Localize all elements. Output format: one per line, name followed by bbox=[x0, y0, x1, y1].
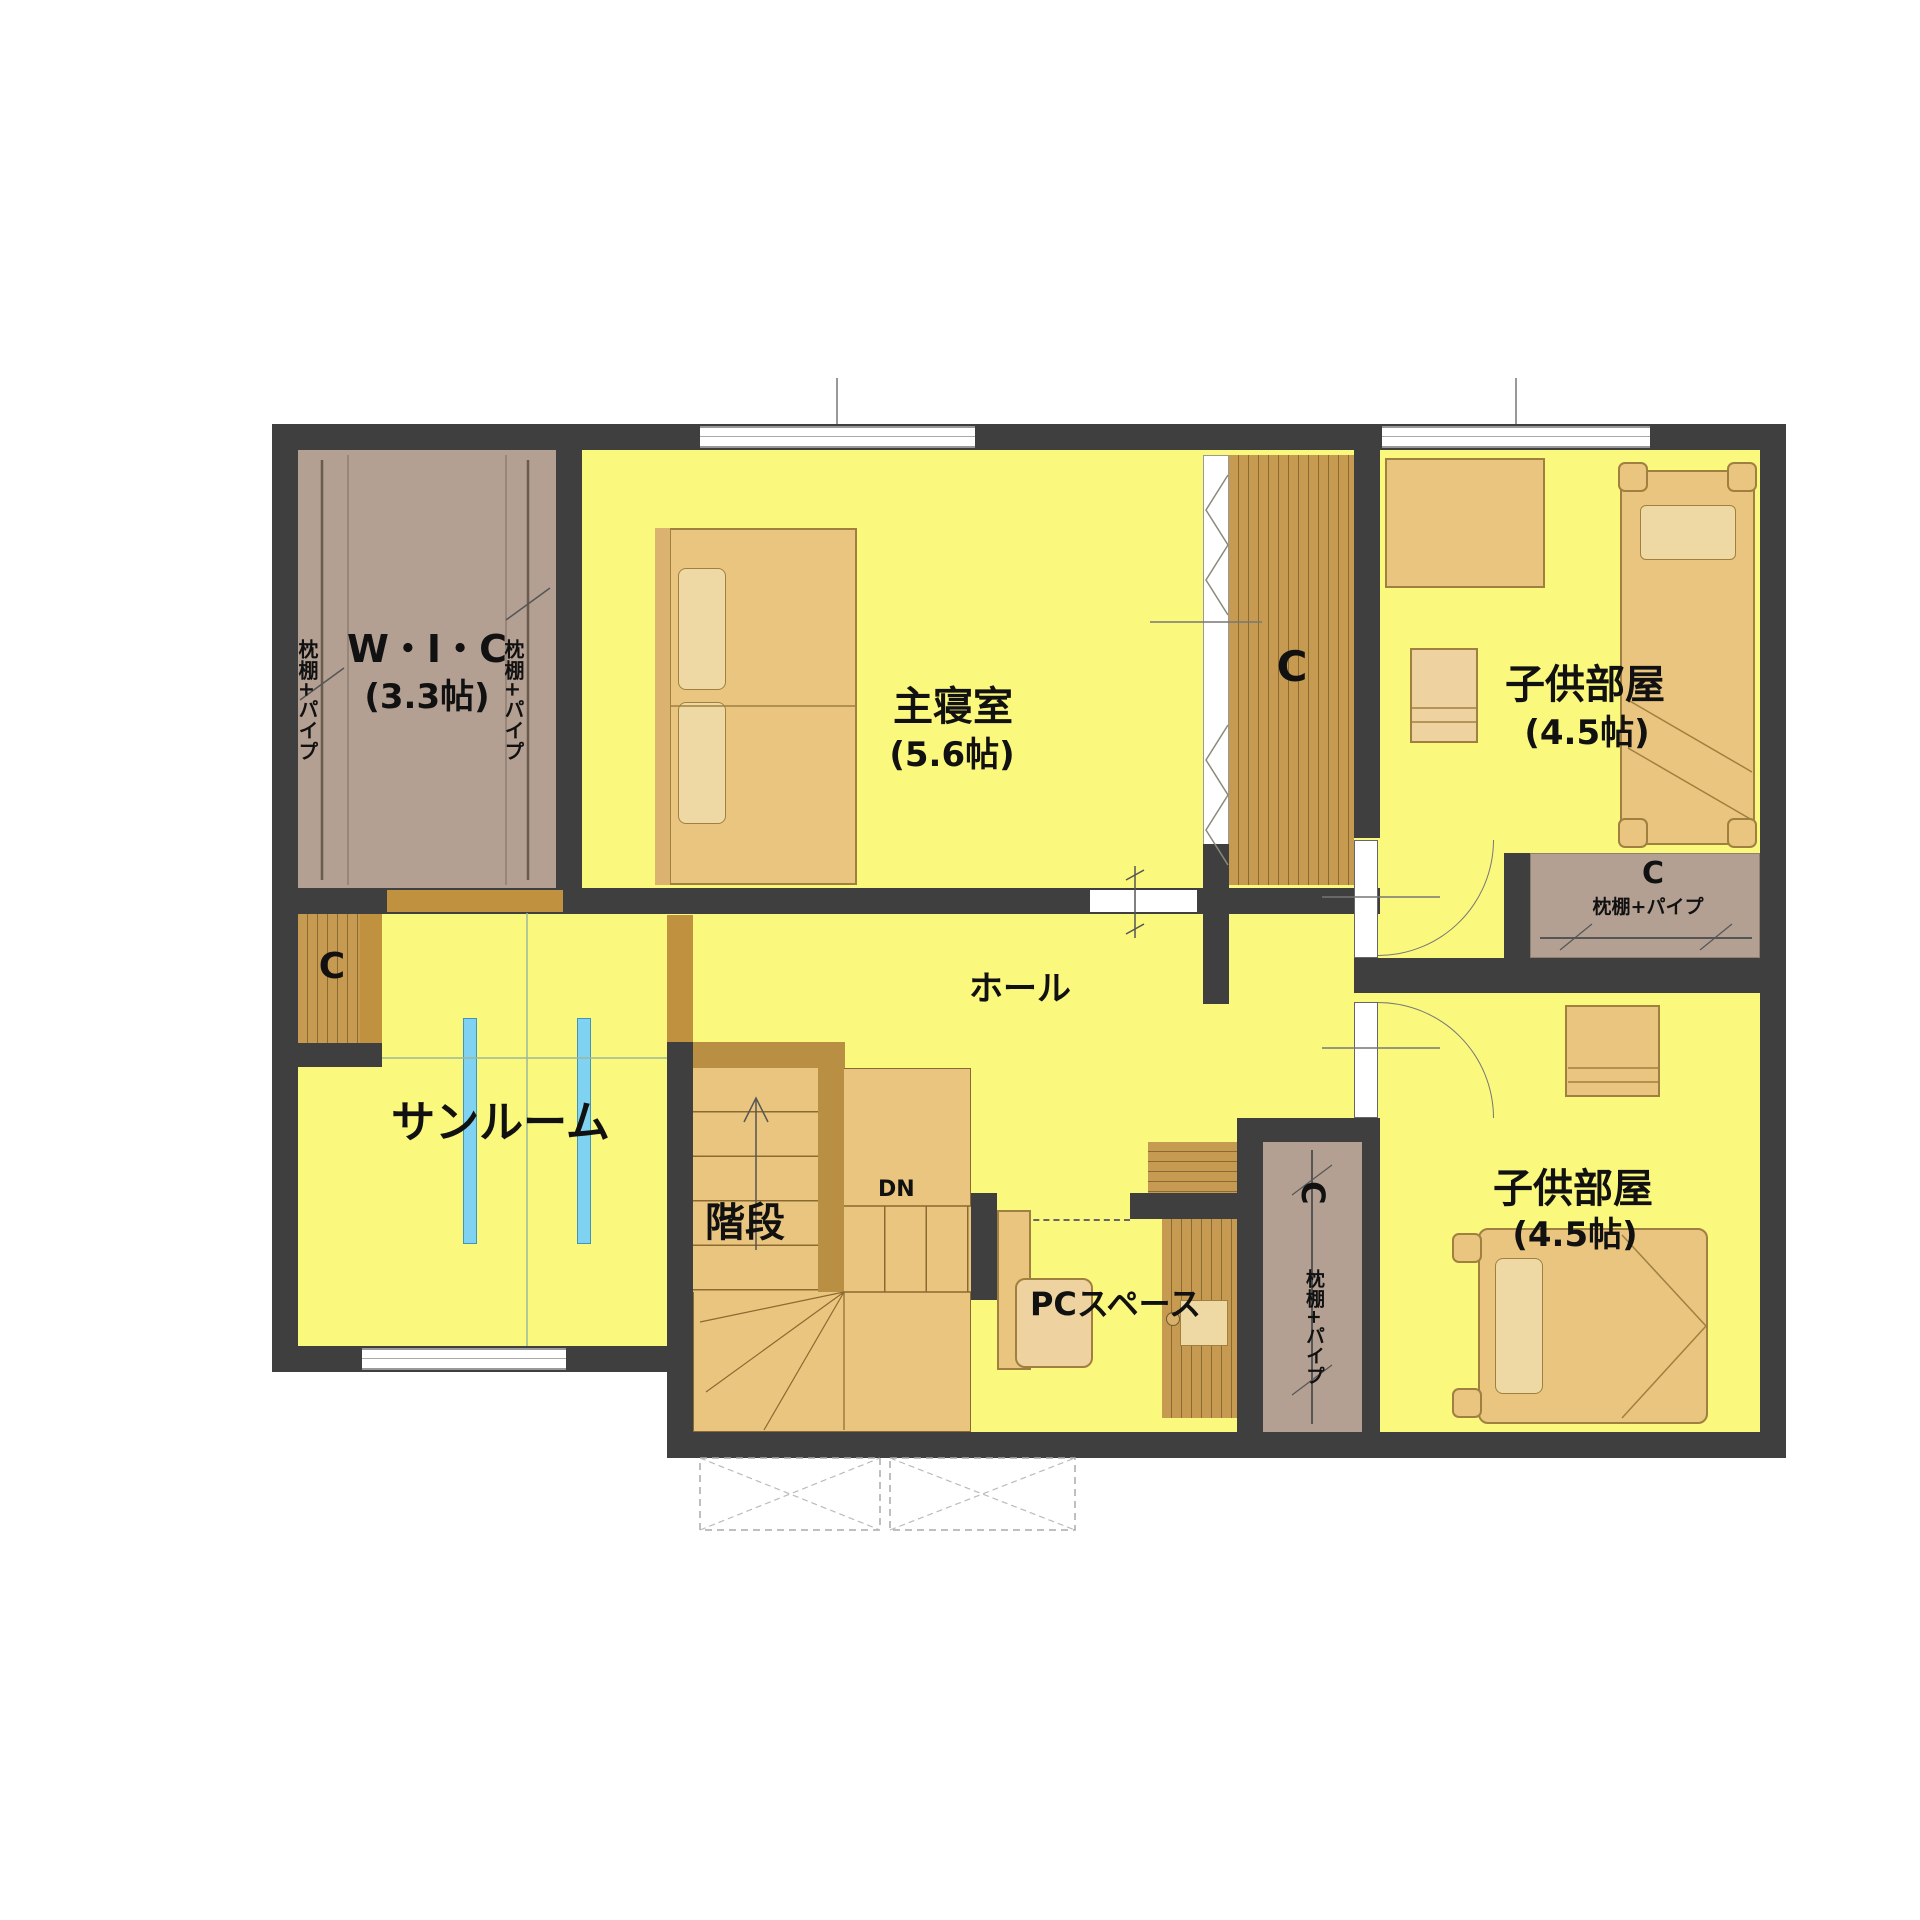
label-stairs: 階段 bbox=[690, 1202, 800, 1244]
window-kids-north bbox=[1382, 426, 1650, 448]
wall-lcloset-south bbox=[298, 1043, 382, 1067]
label-stairs-dn: DN bbox=[878, 1178, 938, 1201]
wall-scloset-east bbox=[1362, 1142, 1380, 1432]
folding-door bbox=[1203, 455, 1229, 885]
kids-north-bed-post-se bbox=[1727, 818, 1757, 848]
wall-between-kids-rooms bbox=[1354, 958, 1760, 993]
master-pillow-1 bbox=[678, 568, 726, 690]
lower-opening-1-x2 bbox=[700, 1458, 880, 1530]
label-closet-se-pipe: 枕棚+パイプ bbox=[1568, 898, 1728, 918]
label-closet-sunroom: C bbox=[310, 948, 354, 986]
wall-stair-east bbox=[971, 1193, 997, 1300]
wall-wic-east bbox=[556, 424, 582, 914]
lower-opening-2-x2 bbox=[890, 1458, 1075, 1530]
label-pc-space: PCスペース bbox=[1028, 1288, 1203, 1322]
label-closet-south-code: C bbox=[1295, 1169, 1329, 1217]
kids-south-bed-post-sw bbox=[1452, 1388, 1482, 1418]
lower-opening-2 bbox=[890, 1458, 1075, 1530]
sunroom-hall-door bbox=[667, 915, 693, 1042]
stair-top-rail bbox=[693, 1042, 845, 1068]
stair-upper-flight bbox=[693, 1068, 818, 1292]
window-tick-1 bbox=[836, 378, 838, 424]
label-closet-master: C bbox=[1262, 645, 1322, 689]
kids-south-bed-post-nw bbox=[1452, 1233, 1482, 1263]
window-master bbox=[700, 426, 975, 448]
window-tick-2 bbox=[1515, 378, 1517, 424]
master-bed-headboard bbox=[655, 528, 671, 885]
wall-secloset-west bbox=[1504, 853, 1530, 958]
label-master-name: 主寝室 bbox=[858, 686, 1048, 728]
door-kids-north bbox=[1354, 840, 1378, 958]
closet-sunroom-door bbox=[360, 913, 382, 1043]
label-master-area: (5.6帖) bbox=[852, 738, 1052, 774]
label-wic-pipe-right: 枕棚+パイプ bbox=[498, 560, 528, 840]
label-closet-south-pipe: 枕棚+パイプ bbox=[1298, 1232, 1328, 1422]
lower-opening-1-x1 bbox=[700, 1458, 880, 1530]
lower-opening-2-x1 bbox=[890, 1458, 1075, 1530]
wic-entry-opening bbox=[387, 890, 563, 912]
stair-lower-flight bbox=[844, 1206, 971, 1292]
label-wic-pipe-left: 枕棚+パイプ bbox=[292, 560, 322, 840]
kids-north-bed-post-ne bbox=[1727, 462, 1757, 492]
label-kids-south-name: 子供部屋 bbox=[1468, 1168, 1678, 1210]
kids-north-shelf bbox=[1410, 648, 1478, 743]
label-kids-north-area: (4.5帖) bbox=[1492, 716, 1682, 752]
label-kids-south-area: (4.5帖) bbox=[1480, 1218, 1670, 1254]
label-hall: ホール bbox=[955, 972, 1085, 1008]
kids-north-bed-post-nw bbox=[1618, 462, 1648, 492]
wall-outer-right bbox=[1760, 424, 1786, 1458]
lower-opening-1 bbox=[700, 1458, 880, 1530]
kids-north-bed-post-sw bbox=[1618, 818, 1648, 848]
kids-south-desk bbox=[1565, 1005, 1660, 1097]
wall-outer-bottom bbox=[667, 1432, 1786, 1458]
wall-closet-east bbox=[1354, 424, 1380, 838]
kids-south-pillow bbox=[1495, 1258, 1543, 1394]
master-pillow-2 bbox=[678, 702, 726, 824]
window-sunroom bbox=[362, 1348, 566, 1370]
label-closet-se-code: C bbox=[1630, 858, 1676, 890]
wall-hall-stub bbox=[1203, 844, 1229, 1004]
closet-shelf-block bbox=[1148, 1142, 1243, 1193]
stair-center-rail bbox=[818, 1068, 844, 1292]
kids-north-desk bbox=[1385, 458, 1545, 588]
wall-pc-north bbox=[1130, 1193, 1237, 1219]
wall-scloset-west bbox=[1237, 1142, 1263, 1432]
door-kids-south bbox=[1354, 1002, 1378, 1118]
kids-north-pillow bbox=[1640, 505, 1736, 560]
label-sunroom: サンルーム bbox=[388, 1100, 613, 1146]
label-kids-north-name: 子供部屋 bbox=[1480, 664, 1690, 706]
exterior-patch bbox=[272, 1372, 693, 1458]
hall-opening bbox=[1090, 890, 1197, 912]
floor-plan-canvas: W・I・C (3.3帖) 枕棚+パイプ 枕棚+パイプ 主寝室 (5.6帖) C … bbox=[0, 0, 1920, 1920]
wall-south-door-cap bbox=[1237, 1118, 1380, 1142]
